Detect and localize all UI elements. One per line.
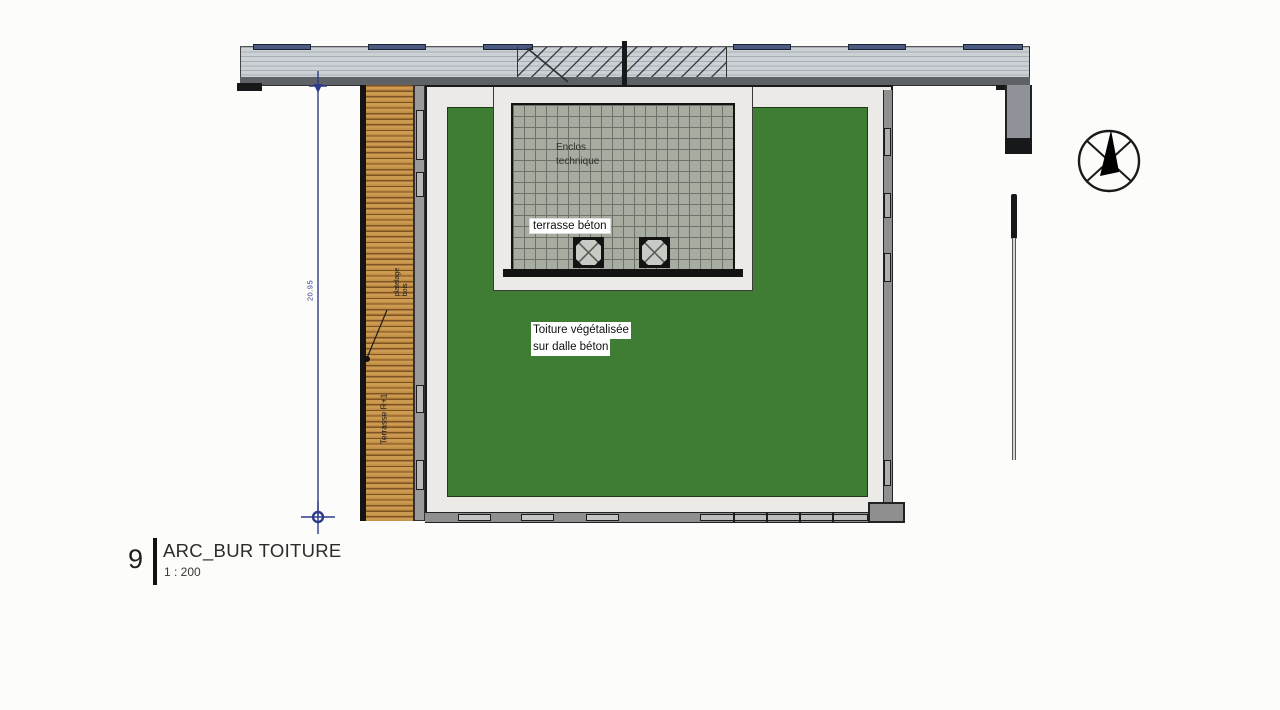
roof-panel-segment bbox=[963, 44, 1023, 50]
deck-label-line2: bois bbox=[402, 268, 410, 296]
roof-panel-segment bbox=[253, 44, 311, 50]
facade-joint bbox=[884, 253, 891, 282]
downpipe-line bbox=[1012, 238, 1016, 460]
dimension-crosshair-icon bbox=[313, 512, 323, 522]
facade-divider bbox=[766, 513, 768, 522]
deck-label: platelage bois bbox=[394, 268, 410, 296]
dimension-text-wrap: 20.95 bbox=[290, 286, 330, 296]
facade-joint bbox=[884, 460, 891, 486]
enclosure-label-line1: Enclos bbox=[556, 141, 599, 155]
facade-panel-band bbox=[700, 514, 868, 521]
sheet-scale: 1 : 200 bbox=[164, 565, 201, 579]
wood-deck-terrace bbox=[366, 85, 414, 521]
corner-wall-step bbox=[868, 502, 905, 523]
wall-column-cap bbox=[1005, 138, 1032, 154]
north-arrow-icon bbox=[1074, 124, 1144, 198]
facade-joint bbox=[416, 460, 424, 490]
facade-joint bbox=[416, 385, 424, 413]
terrace-level-label-wrap: Terrasse R+1 bbox=[340, 412, 426, 426]
deck-label-line1: platelage bbox=[394, 268, 402, 296]
terrace-level-label: Terrasse R+1 bbox=[378, 394, 388, 445]
roof-axis-post bbox=[622, 41, 627, 85]
green-roof-label: Toiture végétalisée sur dalle béton bbox=[531, 322, 631, 356]
dimension-value: 20.95 bbox=[306, 271, 315, 311]
roof-plan-canvas: Enclos technique terrasse béton Toiture … bbox=[0, 0, 1280, 710]
facade-joint bbox=[884, 128, 891, 156]
facade-joint bbox=[416, 110, 424, 160]
crossed-square-icon bbox=[576, 240, 601, 265]
facade-panel-notch bbox=[586, 514, 619, 521]
sheet-title: ARC_BUR TOITURE bbox=[163, 540, 342, 562]
facade-divider bbox=[733, 513, 735, 522]
roof-panel-segment bbox=[368, 44, 426, 50]
enclosure-label: Enclos technique bbox=[556, 141, 599, 169]
roof-drain-icon bbox=[573, 237, 604, 268]
wall-column-tick bbox=[996, 85, 1005, 90]
roof-drain-icon bbox=[639, 237, 670, 268]
facade-joint bbox=[416, 172, 424, 197]
crossed-square-icon bbox=[642, 240, 667, 265]
technical-enclosure-tiles bbox=[511, 103, 735, 271]
roof-panel-segment bbox=[848, 44, 906, 50]
green-roof-label-line2: sur dalle béton bbox=[531, 339, 610, 356]
roof-panel-segment bbox=[733, 44, 791, 50]
facade-divider bbox=[832, 513, 834, 522]
enclosure-base-wall bbox=[503, 269, 743, 277]
green-roof-label-line1: Toiture végétalisée bbox=[531, 322, 631, 339]
wall-column-section bbox=[1005, 85, 1032, 138]
sheet-number: 9 bbox=[128, 544, 143, 575]
facade-panel-notch bbox=[521, 514, 554, 521]
facade-panel-notch bbox=[458, 514, 491, 521]
enclosure-label-line2: technique bbox=[556, 155, 599, 169]
facade-divider bbox=[799, 513, 801, 522]
title-divider-bar bbox=[153, 538, 157, 585]
deck-label-wrap: platelage bois bbox=[352, 270, 452, 294]
wall-stub bbox=[237, 83, 262, 91]
facade-joint bbox=[884, 193, 891, 218]
downpipe-head bbox=[1011, 194, 1017, 239]
concrete-terrace-label: terrasse béton bbox=[529, 218, 611, 234]
